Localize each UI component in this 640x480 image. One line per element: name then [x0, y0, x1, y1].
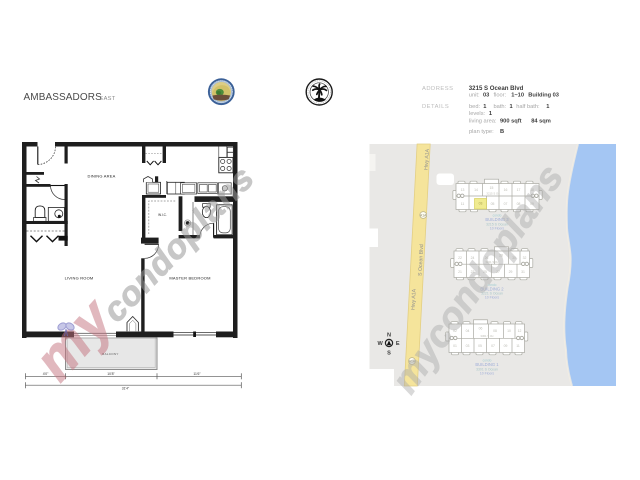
- svg-text:06: 06: [479, 327, 483, 331]
- svg-text:unit:03floor:1~10Building 03: unit:03floor:1~10Building 03: [469, 93, 559, 99]
- svg-text:A1A: A1A: [420, 214, 427, 218]
- svg-text:DETAILS: DETAILS: [422, 104, 449, 110]
- svg-text:W: W: [378, 341, 384, 347]
- svg-text:05: 05: [478, 344, 482, 348]
- svg-text:EAST: EAST: [100, 96, 116, 102]
- svg-text:3301 S Oc: 3301 S Oc: [480, 334, 494, 338]
- svg-text:plan type:B: plan type:B: [469, 129, 504, 135]
- svg-text:22: 22: [458, 256, 462, 260]
- svg-text:14: 14: [474, 188, 478, 192]
- svg-text:10'8": 10'8": [107, 372, 115, 376]
- svg-text:S: S: [387, 350, 391, 356]
- svg-text:E: E: [396, 341, 400, 347]
- svg-text:10: 10: [507, 329, 511, 333]
- svg-text:16: 16: [504, 188, 508, 192]
- svg-text:MASTER BEDROOM: MASTER BEDROOM: [169, 276, 210, 281]
- svg-text:03: 03: [479, 202, 483, 206]
- svg-text:12: 12: [518, 329, 522, 333]
- svg-text:DINING AREA: DINING AREA: [88, 173, 116, 178]
- svg-text:3215 S Oc: 3215 S Oc: [486, 192, 500, 196]
- svg-text:31'4": 31'4": [122, 386, 130, 390]
- svg-text:W.I.C.: W.I.C.: [158, 213, 167, 217]
- svg-text:3215 S Ocean Blvd: 3215 S Ocean Blvd: [469, 85, 524, 92]
- svg-text:Hwy A1A: Hwy A1A: [411, 288, 418, 310]
- svg-text:11: 11: [461, 202, 465, 206]
- svg-text:11'6": 11'6": [193, 372, 201, 376]
- svg-text:LIVING ROOM: LIVING ROOM: [65, 275, 94, 280]
- svg-text:11: 11: [516, 344, 520, 348]
- svg-text:08: 08: [493, 329, 497, 333]
- svg-text:09: 09: [504, 344, 508, 348]
- svg-text:31: 31: [521, 270, 525, 274]
- svg-text:32: 32: [523, 256, 527, 260]
- svg-text:bed:1bath:1half bath:1: bed:1bath:1half bath:1: [469, 104, 549, 110]
- svg-text:N: N: [387, 332, 391, 338]
- svg-text:10 Floors: 10 Floors: [480, 371, 494, 375]
- svg-text:ADDRESS: ADDRESS: [422, 86, 454, 92]
- svg-text:13: 13: [461, 188, 465, 192]
- svg-text:15: 15: [490, 186, 494, 190]
- svg-text:07: 07: [491, 344, 495, 348]
- svg-text:05: 05: [491, 202, 495, 206]
- svg-text:03: 03: [466, 344, 470, 348]
- svg-text:AMBASSADORS: AMBASSADORS: [24, 92, 103, 103]
- svg-text:levels:1: levels:1: [469, 111, 492, 117]
- svg-text:living area:900 sqft84 sqm: living area:900 sqft84 sqm: [469, 119, 551, 125]
